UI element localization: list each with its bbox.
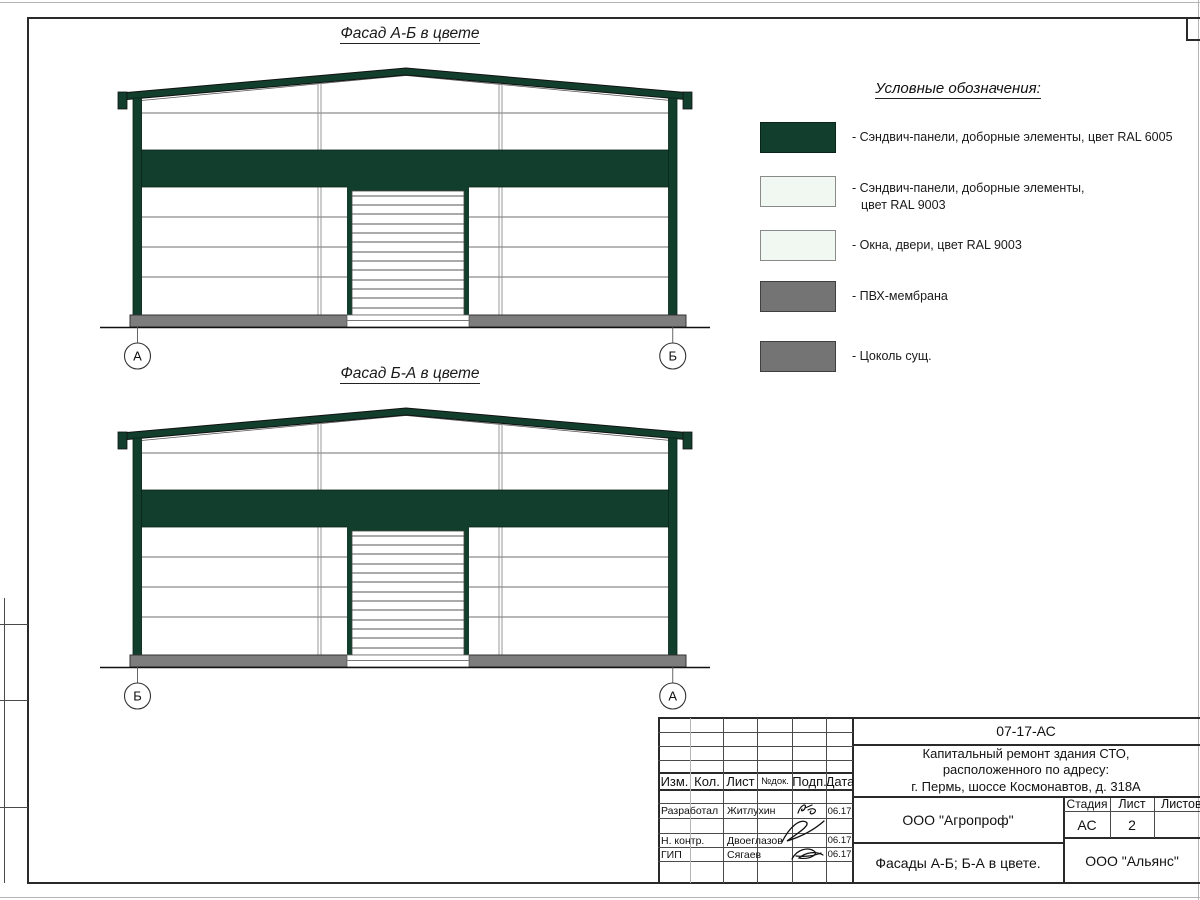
sheet-name: Фасады А-Б; Б-А в цвете. xyxy=(853,843,1063,882)
legend-item-label: - Цоколь сущ. xyxy=(852,349,932,363)
column-left xyxy=(133,98,142,315)
col-izm: Изм. xyxy=(659,773,690,789)
signature-ncontrol xyxy=(778,816,826,846)
col-list: Лист xyxy=(724,773,757,789)
legend-item-label: - Сэндвич-панели, доборные элементы, xyxy=(852,181,1085,195)
facade-2-title: Фасад Б-А в цвете xyxy=(270,365,550,383)
list-value: 2 xyxy=(1110,812,1154,837)
legend-item-label: - Сэндвич-панели, доборные элементы, цве… xyxy=(852,130,1173,144)
doc-code: 07-17-АС xyxy=(853,718,1199,744)
project-name-line2: расположенного по адресу: xyxy=(943,762,1109,779)
plinth-right xyxy=(469,315,686,327)
existing-plinth-swatch xyxy=(760,341,836,372)
paper-edge-top xyxy=(0,2,1200,3)
stage-value: АС xyxy=(1064,812,1110,837)
legend-item-label-line2: цвет RAL 9003 xyxy=(861,198,946,212)
tb-row-line xyxy=(658,746,853,747)
tb-header-bottom xyxy=(658,789,853,791)
pvc-membrane-swatch xyxy=(760,281,836,312)
side-stamp-div2 xyxy=(0,700,28,701)
legend-title-text: Условные обозначения: xyxy=(875,80,1041,99)
signature-developer xyxy=(794,801,824,817)
org-top: ООО "Агропроф" xyxy=(853,797,1063,842)
project-name-line3: г. Пермь, шоссе Космонавтов, д. 318А xyxy=(911,779,1140,796)
titleblock-left xyxy=(658,717,660,883)
listov-value xyxy=(1155,812,1200,837)
col-data: Дата xyxy=(827,773,853,789)
plinth-right xyxy=(469,655,686,667)
signature-gip xyxy=(786,845,828,863)
axis-letter-left: А xyxy=(133,349,142,364)
plinth-left xyxy=(130,655,347,667)
frame-bottom xyxy=(27,882,1200,884)
legend-item-label: - ПВХ-мембрана xyxy=(852,289,948,303)
tb-row-line xyxy=(658,760,853,761)
name-gip: Сягаев xyxy=(727,848,791,861)
drawing-sheet: Фасад А-Б в цвете xyxy=(0,0,1200,900)
role-gip: ГИП xyxy=(661,848,722,861)
frame-top xyxy=(27,17,1200,19)
project-name-line1: Капитальный ремонт здания СТО, xyxy=(923,746,1130,763)
green-band-ral6005 xyxy=(142,490,671,527)
roof-end-cap-left xyxy=(118,432,127,449)
side-stamp-line xyxy=(4,598,5,883)
col-kol: Кол. xyxy=(691,773,723,789)
axis-letter-right: Б xyxy=(668,349,677,364)
side-stamp-div1 xyxy=(0,624,28,625)
date-gip: 06.17 xyxy=(827,848,852,861)
windows-doors-swatch xyxy=(760,230,836,261)
org-bottom: ООО "Альянс" xyxy=(1065,839,1199,882)
gate-leaf xyxy=(352,531,464,655)
list-label: Лист xyxy=(1110,797,1154,811)
roof-end-cap-right xyxy=(683,92,692,109)
frame-left xyxy=(27,17,29,884)
date-developer: 06.17 xyxy=(827,804,852,818)
legend-title: Условные обозначения: xyxy=(846,80,1070,97)
facade-1-title: Фасад А-Б в цвете xyxy=(270,25,550,43)
sandwich-panels-ral9003-swatch xyxy=(760,176,836,207)
facade-2-title-text: Фасад Б-А в цвете xyxy=(340,365,479,384)
plinth-left xyxy=(130,315,347,327)
col-ndoc: №док. xyxy=(758,773,792,789)
facade-2-drawing: Б А xyxy=(95,395,715,715)
paper-edge-bottom xyxy=(0,897,1200,898)
col-podp: Подп. xyxy=(793,773,826,789)
tb-col-line xyxy=(723,718,724,883)
column-right xyxy=(669,98,678,315)
date-ncontrol: 06.17 xyxy=(827,834,852,847)
legend-item-label: - Окна, двери, цвет RAL 9003 xyxy=(852,238,1022,252)
roof-end-cap-left xyxy=(118,92,127,109)
axis-letter-right: А xyxy=(668,689,677,704)
column-right xyxy=(669,438,678,655)
side-stamp-div3 xyxy=(0,807,28,808)
column-left xyxy=(133,438,142,655)
green-band-ral6005 xyxy=(142,150,671,187)
project-name: Капитальный ремонт здания СТО, расположе… xyxy=(853,745,1199,796)
sandwich-panels-ral6005-swatch xyxy=(760,122,836,153)
roof-end-cap-right xyxy=(683,432,692,449)
facade-1-title-text: Фасад А-Б в цвете xyxy=(340,25,479,44)
corner-stamp-bottom xyxy=(1186,39,1200,41)
listov-label: Листов xyxy=(1155,797,1200,811)
role-developer: Разработал xyxy=(661,804,722,818)
corner-stamp-left xyxy=(1186,18,1188,40)
role-ncontrol: Н. контр. xyxy=(661,834,722,847)
facade-1-drawing: А Б xyxy=(95,55,715,375)
stage-label: Стадия xyxy=(1064,797,1110,811)
axis-letter-left: Б xyxy=(133,689,142,704)
gate-leaf xyxy=(352,191,464,315)
tb-row-line xyxy=(658,732,853,733)
